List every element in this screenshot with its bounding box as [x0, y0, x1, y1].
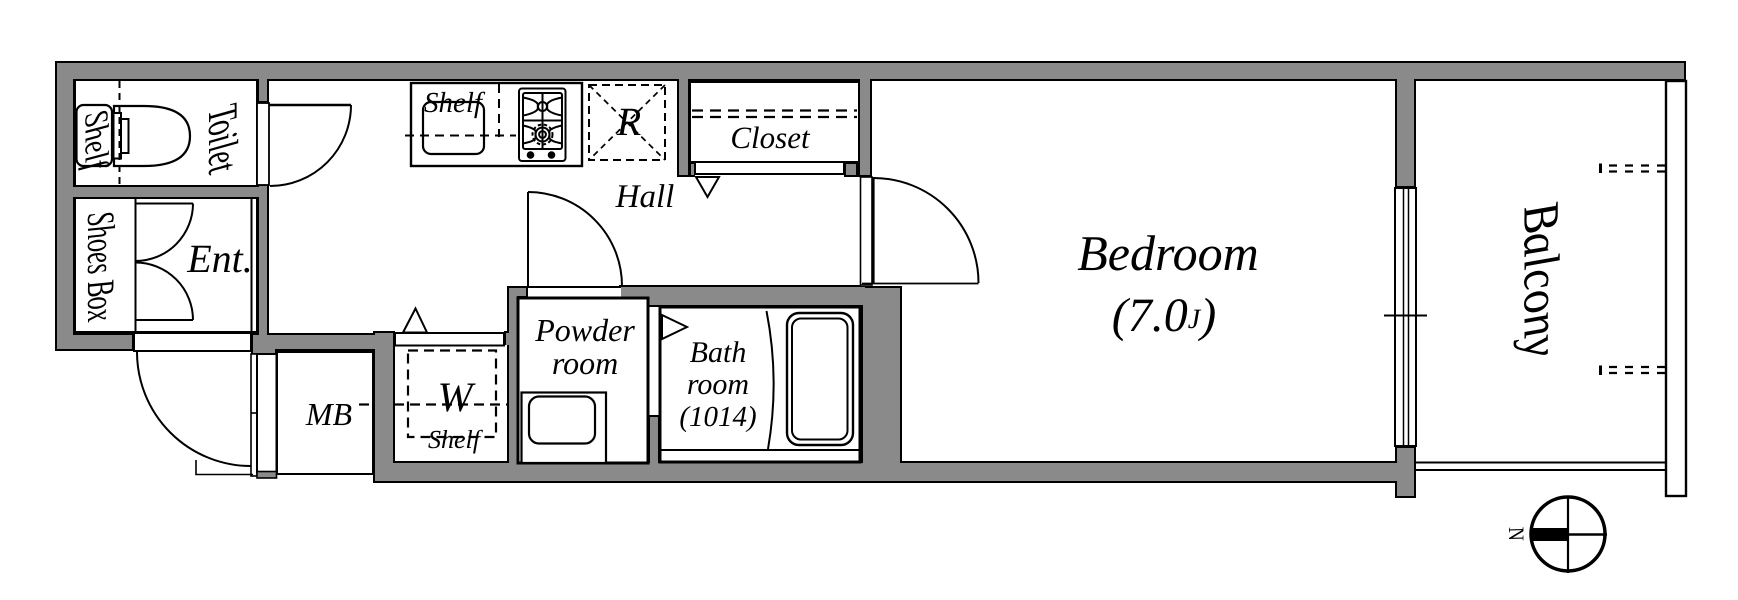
svg-text:Shoes Box: Shoes Box [79, 207, 122, 326]
svg-text:W: W [438, 375, 477, 421]
svg-text:Balcony: Balcony [1512, 193, 1568, 366]
svg-text:room: room [552, 345, 618, 381]
svg-text:room: room [687, 368, 749, 401]
svg-text:Shelf: Shelf [424, 87, 486, 119]
svg-text:R: R [616, 99, 641, 144]
svg-text:Closet: Closet [730, 120, 811, 155]
svg-text:(1014): (1014) [679, 401, 756, 433]
svg-text:Ent.: Ent. [186, 236, 253, 281]
svg-text:Hall: Hall [615, 179, 675, 215]
svg-text:Bedroom: Bedroom [1077, 225, 1258, 281]
svg-text:(7.0J): (7.0J) [1112, 289, 1216, 342]
svg-text:MB: MB [305, 396, 352, 432]
svg-text:Shelf: Shelf [428, 425, 484, 454]
svg-text:Bath: Bath [690, 336, 747, 369]
svg-text:Powder: Powder [534, 312, 635, 348]
